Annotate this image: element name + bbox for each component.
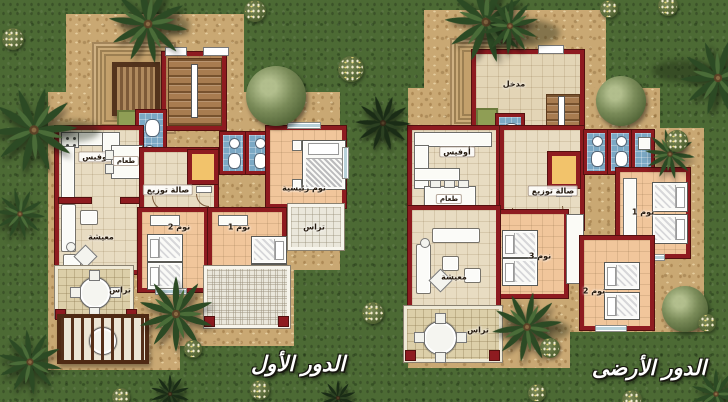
- flower-bush-icon: [362, 302, 384, 324]
- side-table: [420, 238, 430, 248]
- palm-tree-icon: [482, 282, 572, 372]
- flower-bush-icon: [528, 384, 546, 402]
- room-label-hall: صالة توزيع: [528, 185, 578, 196]
- palm-tree-icon: [688, 366, 728, 402]
- toilet-icon: [615, 151, 628, 167]
- window: [596, 326, 626, 331]
- chair: [456, 332, 467, 343]
- chair: [414, 332, 425, 343]
- room-label-bedroom-1: نوم 1: [632, 207, 654, 216]
- bed: [652, 214, 688, 244]
- room-label-bedroom-2: نوم 2: [583, 286, 605, 295]
- room-label-bedroom-3: نوم 3: [529, 251, 551, 260]
- bathroom: [584, 130, 608, 174]
- bedroom-2: [580, 236, 654, 330]
- living-room: [408, 206, 500, 312]
- chair: [435, 352, 446, 363]
- site-plan-rendering: أوفيس معيشة طعام صالة توزيع: [0, 0, 728, 402]
- palm-tree-icon: [318, 378, 358, 402]
- palm-tree-icon: [134, 272, 218, 356]
- sofa: [432, 228, 480, 243]
- round-table: [423, 321, 457, 355]
- chair: [458, 180, 469, 188]
- flower-bush-icon: [698, 314, 716, 332]
- sink-icon: [592, 136, 603, 147]
- chair: [430, 180, 441, 188]
- armchair: [442, 256, 459, 271]
- bed: [502, 258, 538, 286]
- flower-bush-icon: [244, 0, 266, 22]
- flower-bush-icon: [112, 388, 130, 402]
- counter: [414, 145, 429, 189]
- toilet-icon: [591, 151, 604, 167]
- elevator: [548, 152, 580, 188]
- flower-bush-icon: [540, 338, 560, 358]
- room-label-dining: طعام: [436, 194, 462, 204]
- flower-bush-icon: [2, 28, 24, 50]
- flower-bush-icon: [666, 130, 688, 152]
- bed: [604, 262, 640, 290]
- chair: [435, 313, 446, 324]
- room-label-office: أوفيس: [439, 146, 475, 157]
- flower-bush-icon: [600, 0, 618, 18]
- sofa: [416, 244, 431, 294]
- sink-icon: [616, 136, 627, 147]
- stair-rail: [558, 96, 565, 128]
- room-label-living: معيشة: [441, 272, 467, 281]
- palm-tree-icon: [148, 372, 192, 402]
- flower-bush-icon: [184, 340, 202, 358]
- chair: [444, 180, 455, 188]
- tree-icon: [246, 66, 306, 126]
- tree-icon: [596, 76, 646, 126]
- corner-post: [406, 351, 415, 360]
- bed: [604, 292, 640, 320]
- room-label-entrance: مدخل: [503, 79, 525, 88]
- planter: [476, 108, 498, 127]
- flower-bush-icon: [338, 56, 364, 82]
- flower-bush-icon: [250, 380, 270, 400]
